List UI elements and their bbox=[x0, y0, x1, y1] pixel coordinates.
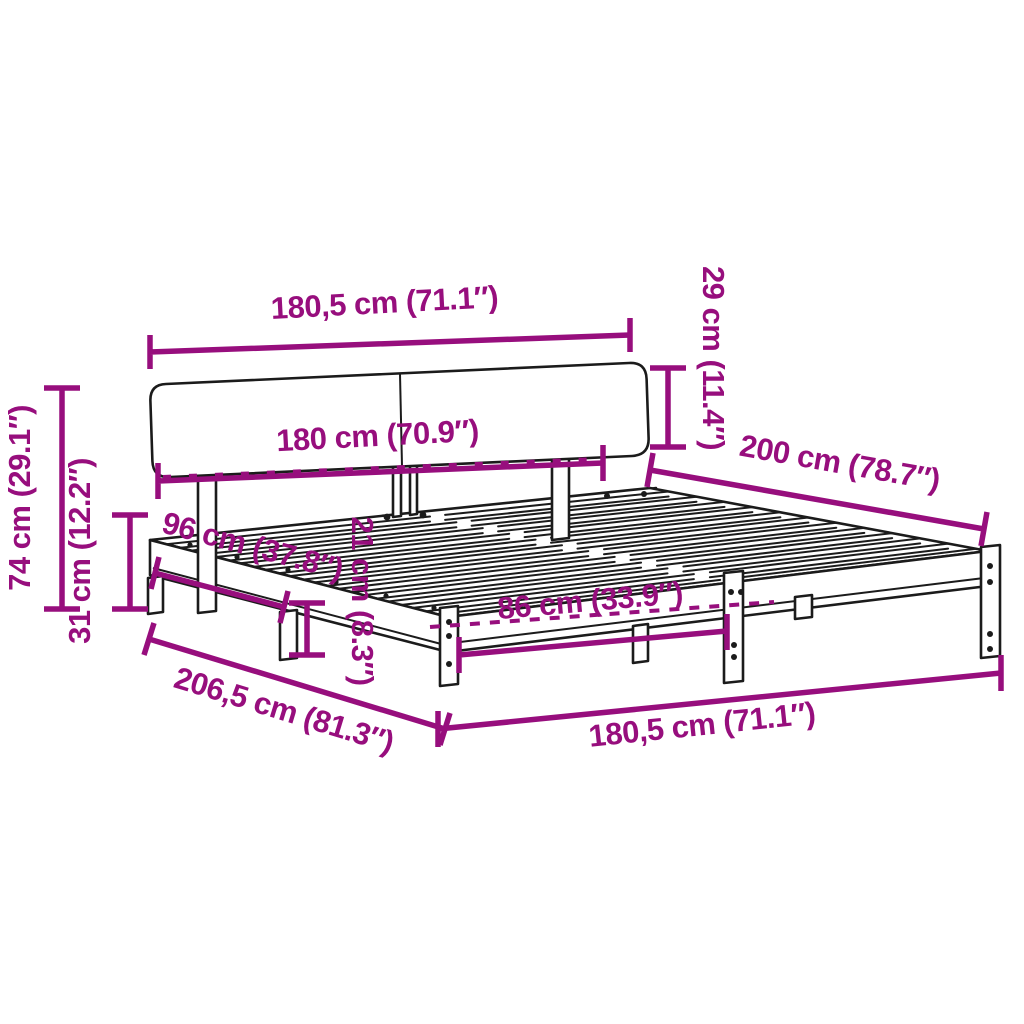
dim-label-bed-length: 200 cm (78.7″) bbox=[737, 428, 943, 498]
dim-label-headboard-width: 180,5 cm (71.1″) bbox=[270, 279, 499, 326]
bed-front-left-leg bbox=[440, 606, 458, 686]
dim-label-total-height: 74 cm (29.1″) bbox=[2, 405, 37, 591]
dim-label-rail-height: 21 cm (8.3″) bbox=[345, 516, 380, 685]
bed-center-leg bbox=[633, 624, 648, 663]
rail-bracket bbox=[795, 595, 812, 619]
dim-line-headboard-height bbox=[650, 368, 686, 447]
dim-line-headboard-width bbox=[150, 318, 630, 369]
diagram-canvas: 180,5 cm (71.1″) 29 cm (11.4″) 180 cm (7… bbox=[0, 0, 1024, 1024]
dim-label-headboard-height: 29 cm (11.4″) bbox=[696, 266, 731, 450]
bed-front-right-leg bbox=[981, 545, 1000, 658]
dim-line-base-height bbox=[112, 515, 148, 609]
bed-frame-drawing bbox=[148, 363, 1000, 686]
bed-frame-dimension-diagram: 180,5 cm (71.1″) 29 cm (11.4″) 180 cm (7… bbox=[0, 0, 1024, 1024]
dim-label-base-height: 31 cm (12.2″) bbox=[62, 458, 97, 644]
